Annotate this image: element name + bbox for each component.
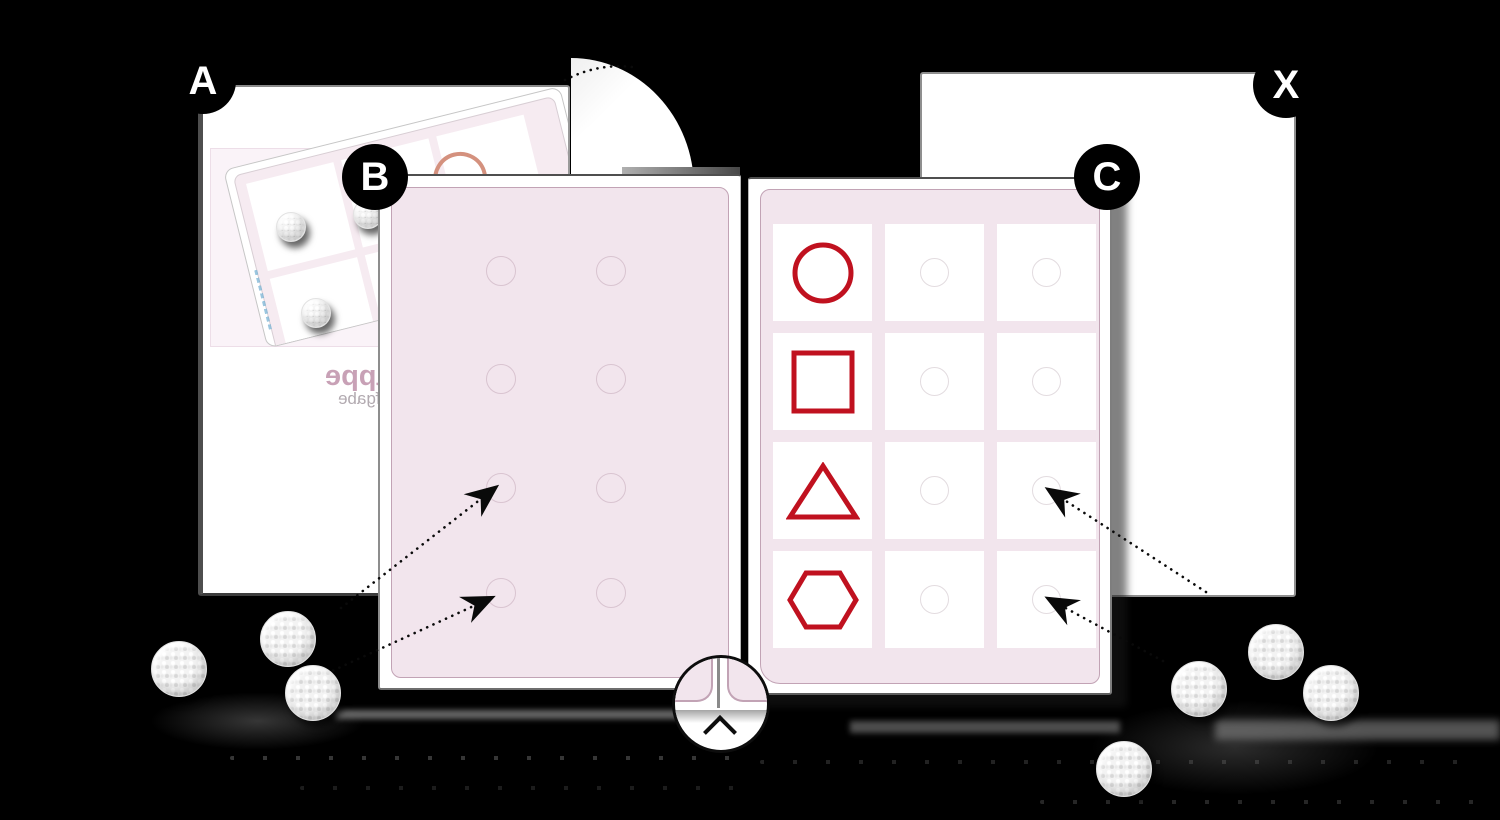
- target-cell: [885, 442, 984, 539]
- velcro-dot: [285, 665, 341, 721]
- target-cell: [885, 224, 984, 321]
- label-c-text: C: [1093, 155, 1122, 200]
- label-b-text: B: [361, 155, 390, 200]
- circle-shape-icon: [792, 242, 854, 304]
- velcro-target-circle: [596, 256, 626, 286]
- illustration-stage: Klappe Aufgabe A B C X: [0, 0, 1500, 820]
- triangle-shape-icon: [786, 462, 860, 520]
- velcro-target-circle: [486, 256, 516, 286]
- floor-dot-row: [1040, 800, 1480, 804]
- shape-board-c: [748, 177, 1112, 695]
- velcro-target-circle: [920, 585, 949, 614]
- floor-shadow: [850, 721, 1120, 733]
- hexagon-shape-icon: [787, 570, 859, 630]
- fold-right-panel-corner: [727, 655, 770, 702]
- velcro-target-circle: [596, 473, 626, 503]
- work-board-b: [378, 174, 741, 690]
- label-c: C: [1074, 144, 1140, 210]
- fold-left-panel-corner: [672, 655, 713, 702]
- fold-line: [717, 655, 720, 708]
- velcro-target-circle: [1032, 367, 1061, 396]
- shape-cell-circle: [773, 224, 872, 321]
- floor-dot-row: [230, 756, 740, 760]
- target-cell: [997, 333, 1096, 430]
- velcro-dot: [301, 298, 331, 328]
- shape-cell-triangle: [773, 442, 872, 539]
- label-x: X: [1253, 52, 1319, 118]
- fold-detail-magnifier: [672, 655, 770, 753]
- floor-dot-row: [300, 786, 740, 790]
- target-cell: [885, 551, 984, 648]
- velcro-dot: [1171, 661, 1227, 717]
- velcro-target-circle: [1032, 476, 1061, 505]
- velcro-target-circle: [920, 476, 949, 505]
- square-shape-icon: [791, 350, 855, 414]
- velcro-dot: [1096, 741, 1152, 797]
- velcro-dot: [1303, 665, 1359, 721]
- label-a-text: A: [189, 59, 218, 104]
- label-x-text: X: [1273, 63, 1300, 108]
- target-cell: [885, 333, 984, 430]
- velcro-target-circle: [486, 364, 516, 394]
- velcro-target-circle: [920, 258, 949, 287]
- velcro-dot: [276, 212, 306, 242]
- velcro-dot: [1248, 624, 1304, 680]
- target-cell: [997, 224, 1096, 321]
- target-cell: [997, 551, 1096, 648]
- shape-cell-hexagon: [773, 551, 872, 648]
- floor-shadow: [335, 710, 685, 719]
- velcro-target-circle: [1032, 585, 1061, 614]
- velcro-target-circle: [1032, 258, 1061, 287]
- velcro-target-circle: [486, 578, 516, 608]
- target-cell: [997, 442, 1096, 539]
- velcro-target-circle: [920, 367, 949, 396]
- shape-grid: [773, 224, 1096, 648]
- floor-shadow: [1215, 720, 1500, 740]
- work-board-pink-panel: [391, 187, 729, 678]
- velcro-target-circle: [486, 473, 516, 503]
- velcro-dot: [151, 641, 207, 697]
- label-a: A: [170, 48, 236, 114]
- shape-cell-square: [773, 333, 872, 430]
- velcro-target-circle: [596, 364, 626, 394]
- velcro-dot: [260, 611, 316, 667]
- velcro-target-circle: [596, 578, 626, 608]
- shape-board-pink-panel: [760, 189, 1100, 684]
- label-b: B: [342, 144, 408, 210]
